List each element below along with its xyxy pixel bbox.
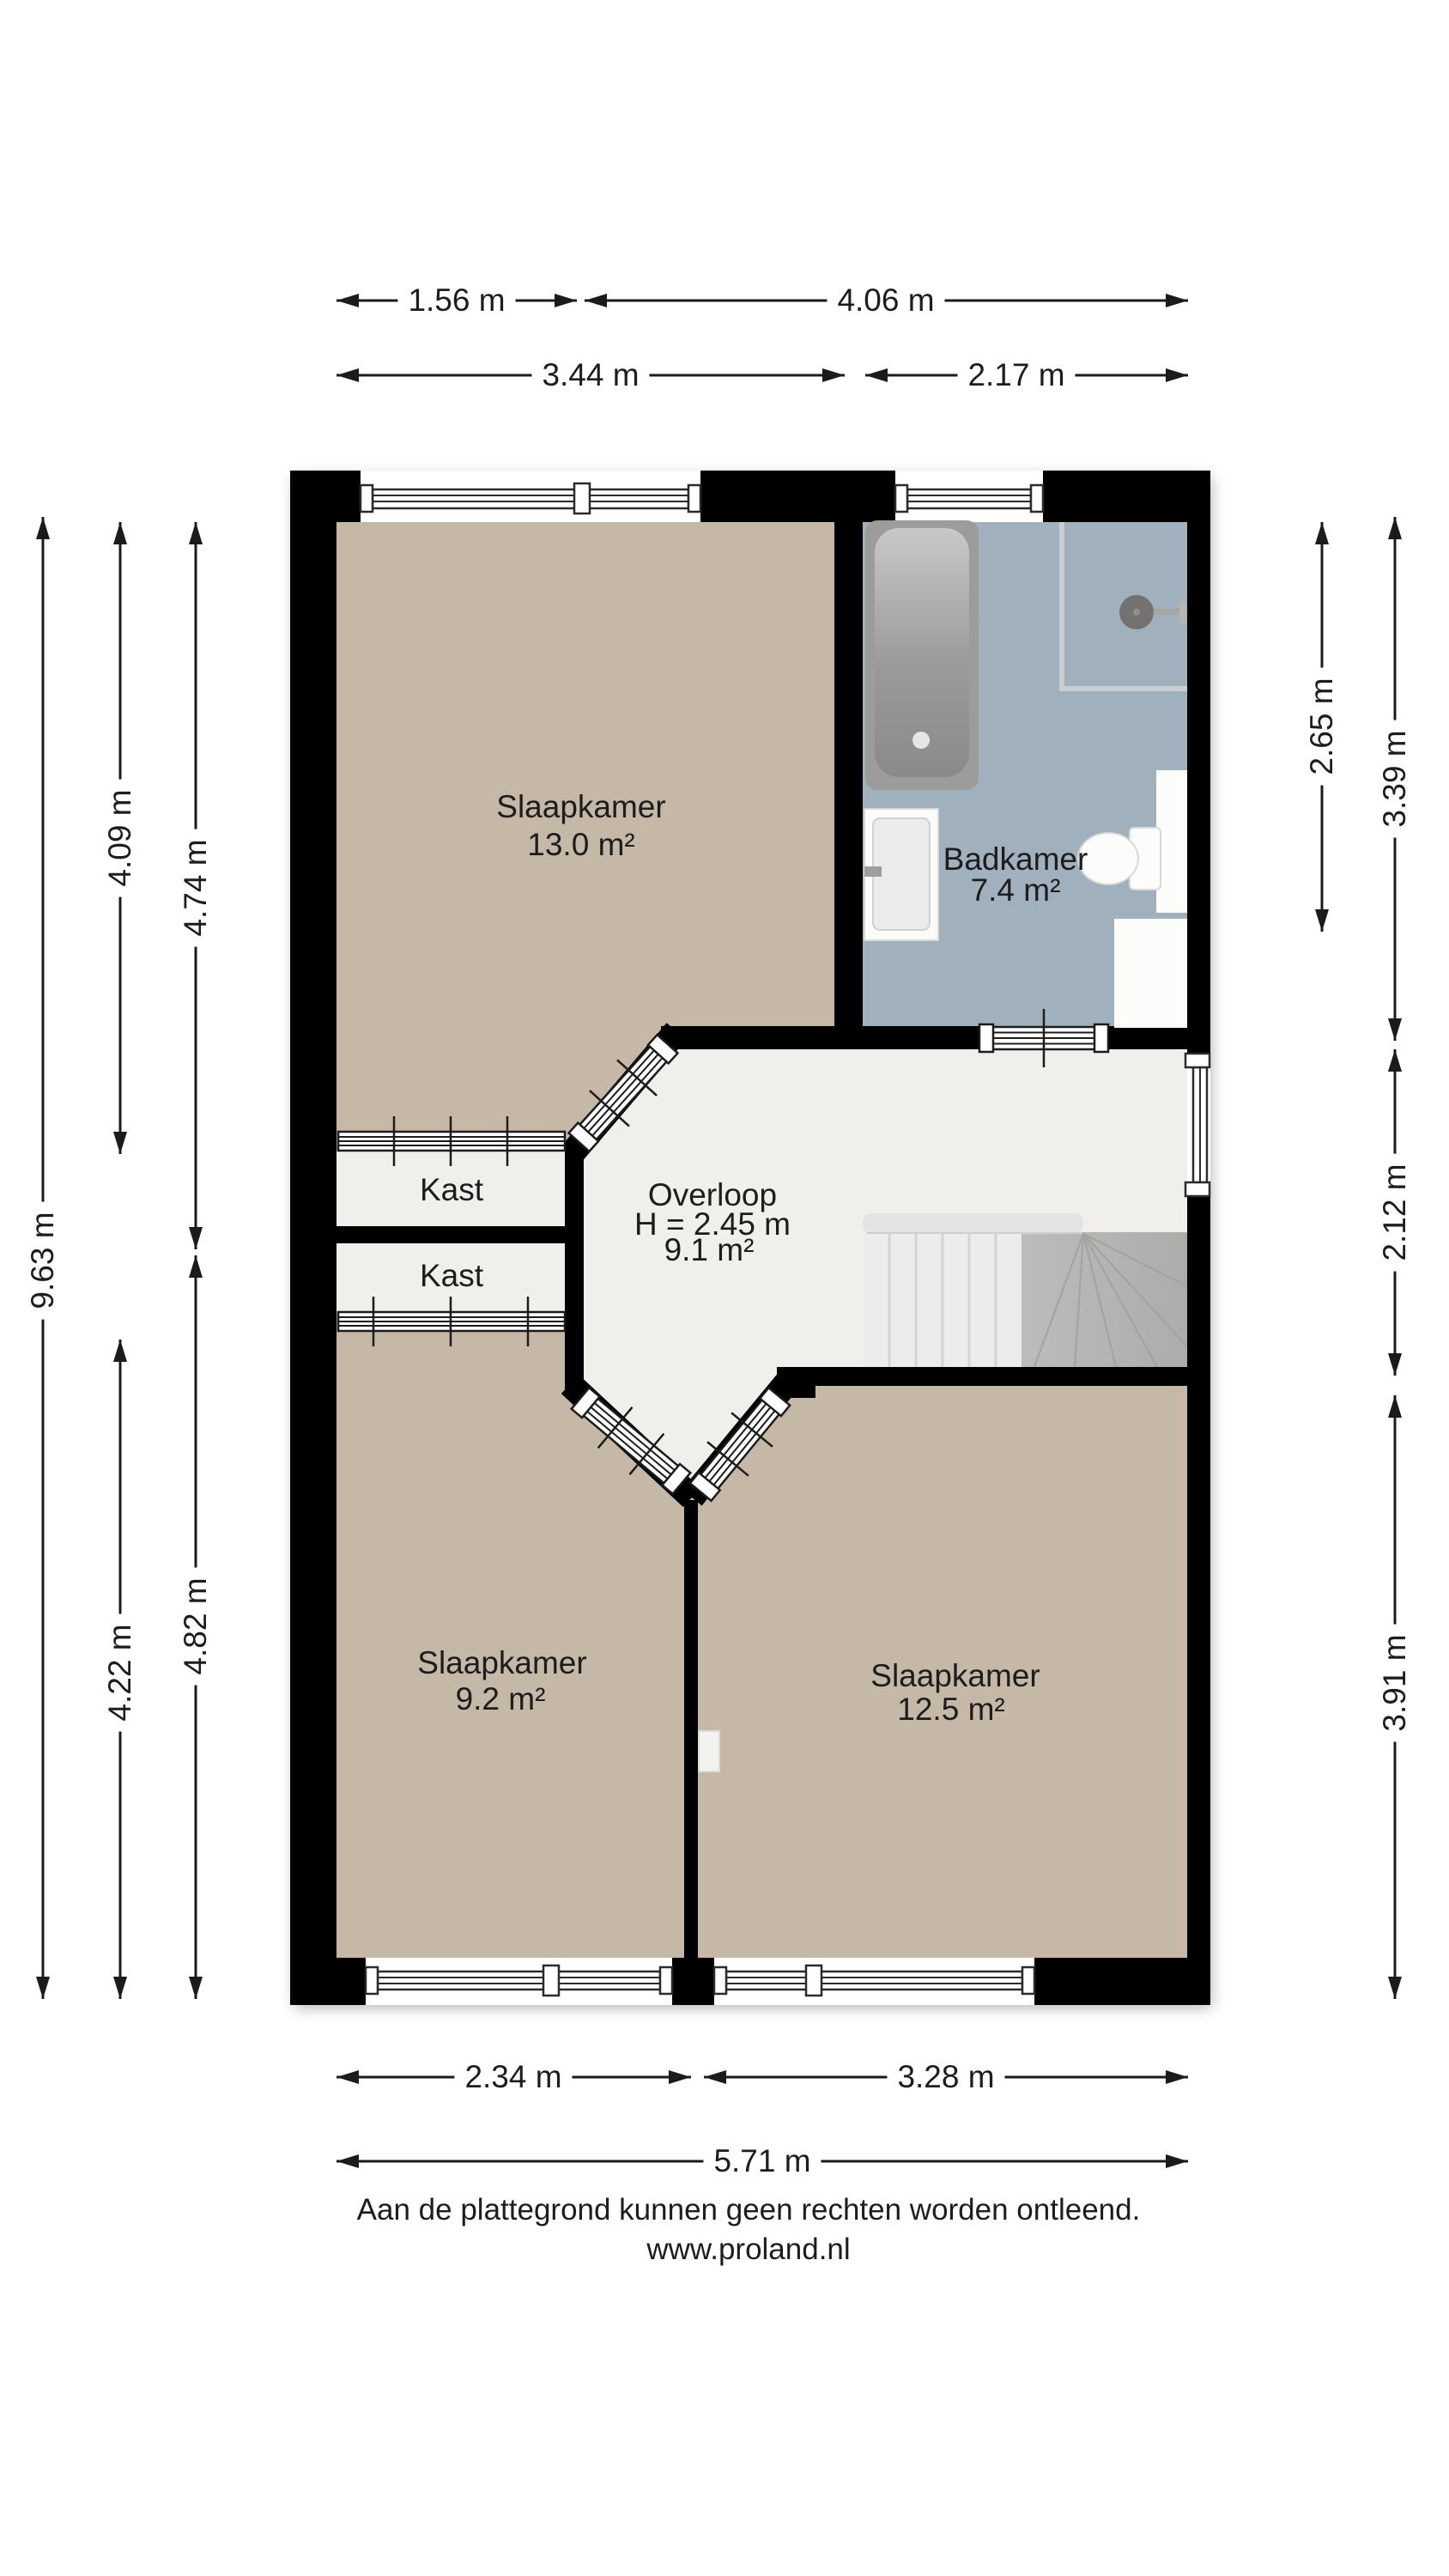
- bathtub-drain: [912, 732, 930, 749]
- wall-right: [1187, 471, 1210, 2005]
- room-label-closet-top: Kast: [420, 1171, 483, 1209]
- dim-right-inner: 2.65 m: [1303, 667, 1341, 785]
- dim-left-inner-2: 4.82 m: [177, 1567, 215, 1685]
- sink-faucet: [864, 866, 882, 877]
- dim-top-4: 2.17 m: [957, 356, 1075, 394]
- dim-left-middle-2: 4.22 m: [101, 1613, 139, 1731]
- dim-left-outer: 9.63 m: [24, 1201, 62, 1319]
- room-area-bedroom-br: 12.5 m²: [897, 1691, 1004, 1728]
- stair-top-landing-edge: [863, 1213, 1083, 1234]
- window-bathroom-top: [895, 471, 1043, 522]
- room-area-bathroom: 7.4 m²: [971, 872, 1061, 909]
- window-bedroom-bottom-left: [366, 1958, 672, 2005]
- window-mullion: [543, 1965, 559, 1996]
- window-mullion: [806, 1965, 822, 1996]
- room-label-bedroom-br: Slaapkamer: [870, 1657, 1040, 1695]
- dim-top-3: 3.44 m: [531, 356, 649, 394]
- wall-closet-divider: [336, 1226, 584, 1243]
- dim-right-outer-3: 3.91 m: [1376, 1624, 1414, 1741]
- staircase: [863, 1213, 1187, 1367]
- toilet: [1078, 828, 1161, 890]
- wall-between-bedrooms: [684, 1500, 698, 1958]
- bathroom-corner-unit: [1114, 919, 1187, 1028]
- dim-bottom-3: 5.71 m: [703, 2142, 821, 2180]
- sink: [864, 809, 938, 940]
- dim-bottom-1: 2.34 m: [454, 2058, 572, 2096]
- stair-winders: [1022, 1232, 1187, 1367]
- room-area-bedroom-bl: 9.2 m²: [456, 1680, 546, 1718]
- room-label-bedroom-top: Slaapkamer: [496, 788, 665, 826]
- room-label-bedroom-bl: Slaapkamer: [417, 1644, 586, 1682]
- dim-right-outer-2: 2.12 m: [1376, 1153, 1414, 1271]
- floorplan-drawing: [0, 0, 1449, 2576]
- wall-left: [290, 471, 336, 2005]
- wall-niche: [699, 1731, 719, 1771]
- room-area-bedroom-top: 13.0 m²: [527, 826, 634, 864]
- footer-disclaimer: Aan de plattegrond kunnen geen rechten w…: [357, 2191, 1141, 2229]
- room-label-closet-bottom: Kast: [420, 1257, 483, 1295]
- floorplan-page: Slaapkamer 13.0 m² Badkamer 7.4 m² Kast …: [0, 0, 1449, 2576]
- dim-top-1: 1.56 m: [397, 282, 515, 319]
- window-bedroom-bottom-right: [714, 1958, 1034, 2005]
- wall-bedroom-bathroom: [834, 522, 863, 1026]
- window-bedroom-top: [361, 471, 700, 522]
- dim-left-middle-1: 4.09 m: [101, 779, 139, 896]
- dim-bottom-2: 3.28 m: [887, 2058, 1004, 2096]
- dim-left-inner-1: 4.74 m: [177, 829, 215, 946]
- wall-closet-landing: [565, 1144, 584, 1395]
- window-mullion: [574, 483, 590, 513]
- room-area-landing: 9.1 m²: [664, 1234, 755, 1267]
- dim-top-2: 4.06 m: [827, 282, 944, 319]
- bathtub: [865, 520, 979, 790]
- wall-stairs-bottom: [797, 1367, 1187, 1386]
- window-landing-right: [1185, 1054, 1210, 1196]
- dim-right-outer-1: 3.39 m: [1376, 720, 1414, 837]
- footer-website: www.proland.nl: [646, 2231, 850, 2269]
